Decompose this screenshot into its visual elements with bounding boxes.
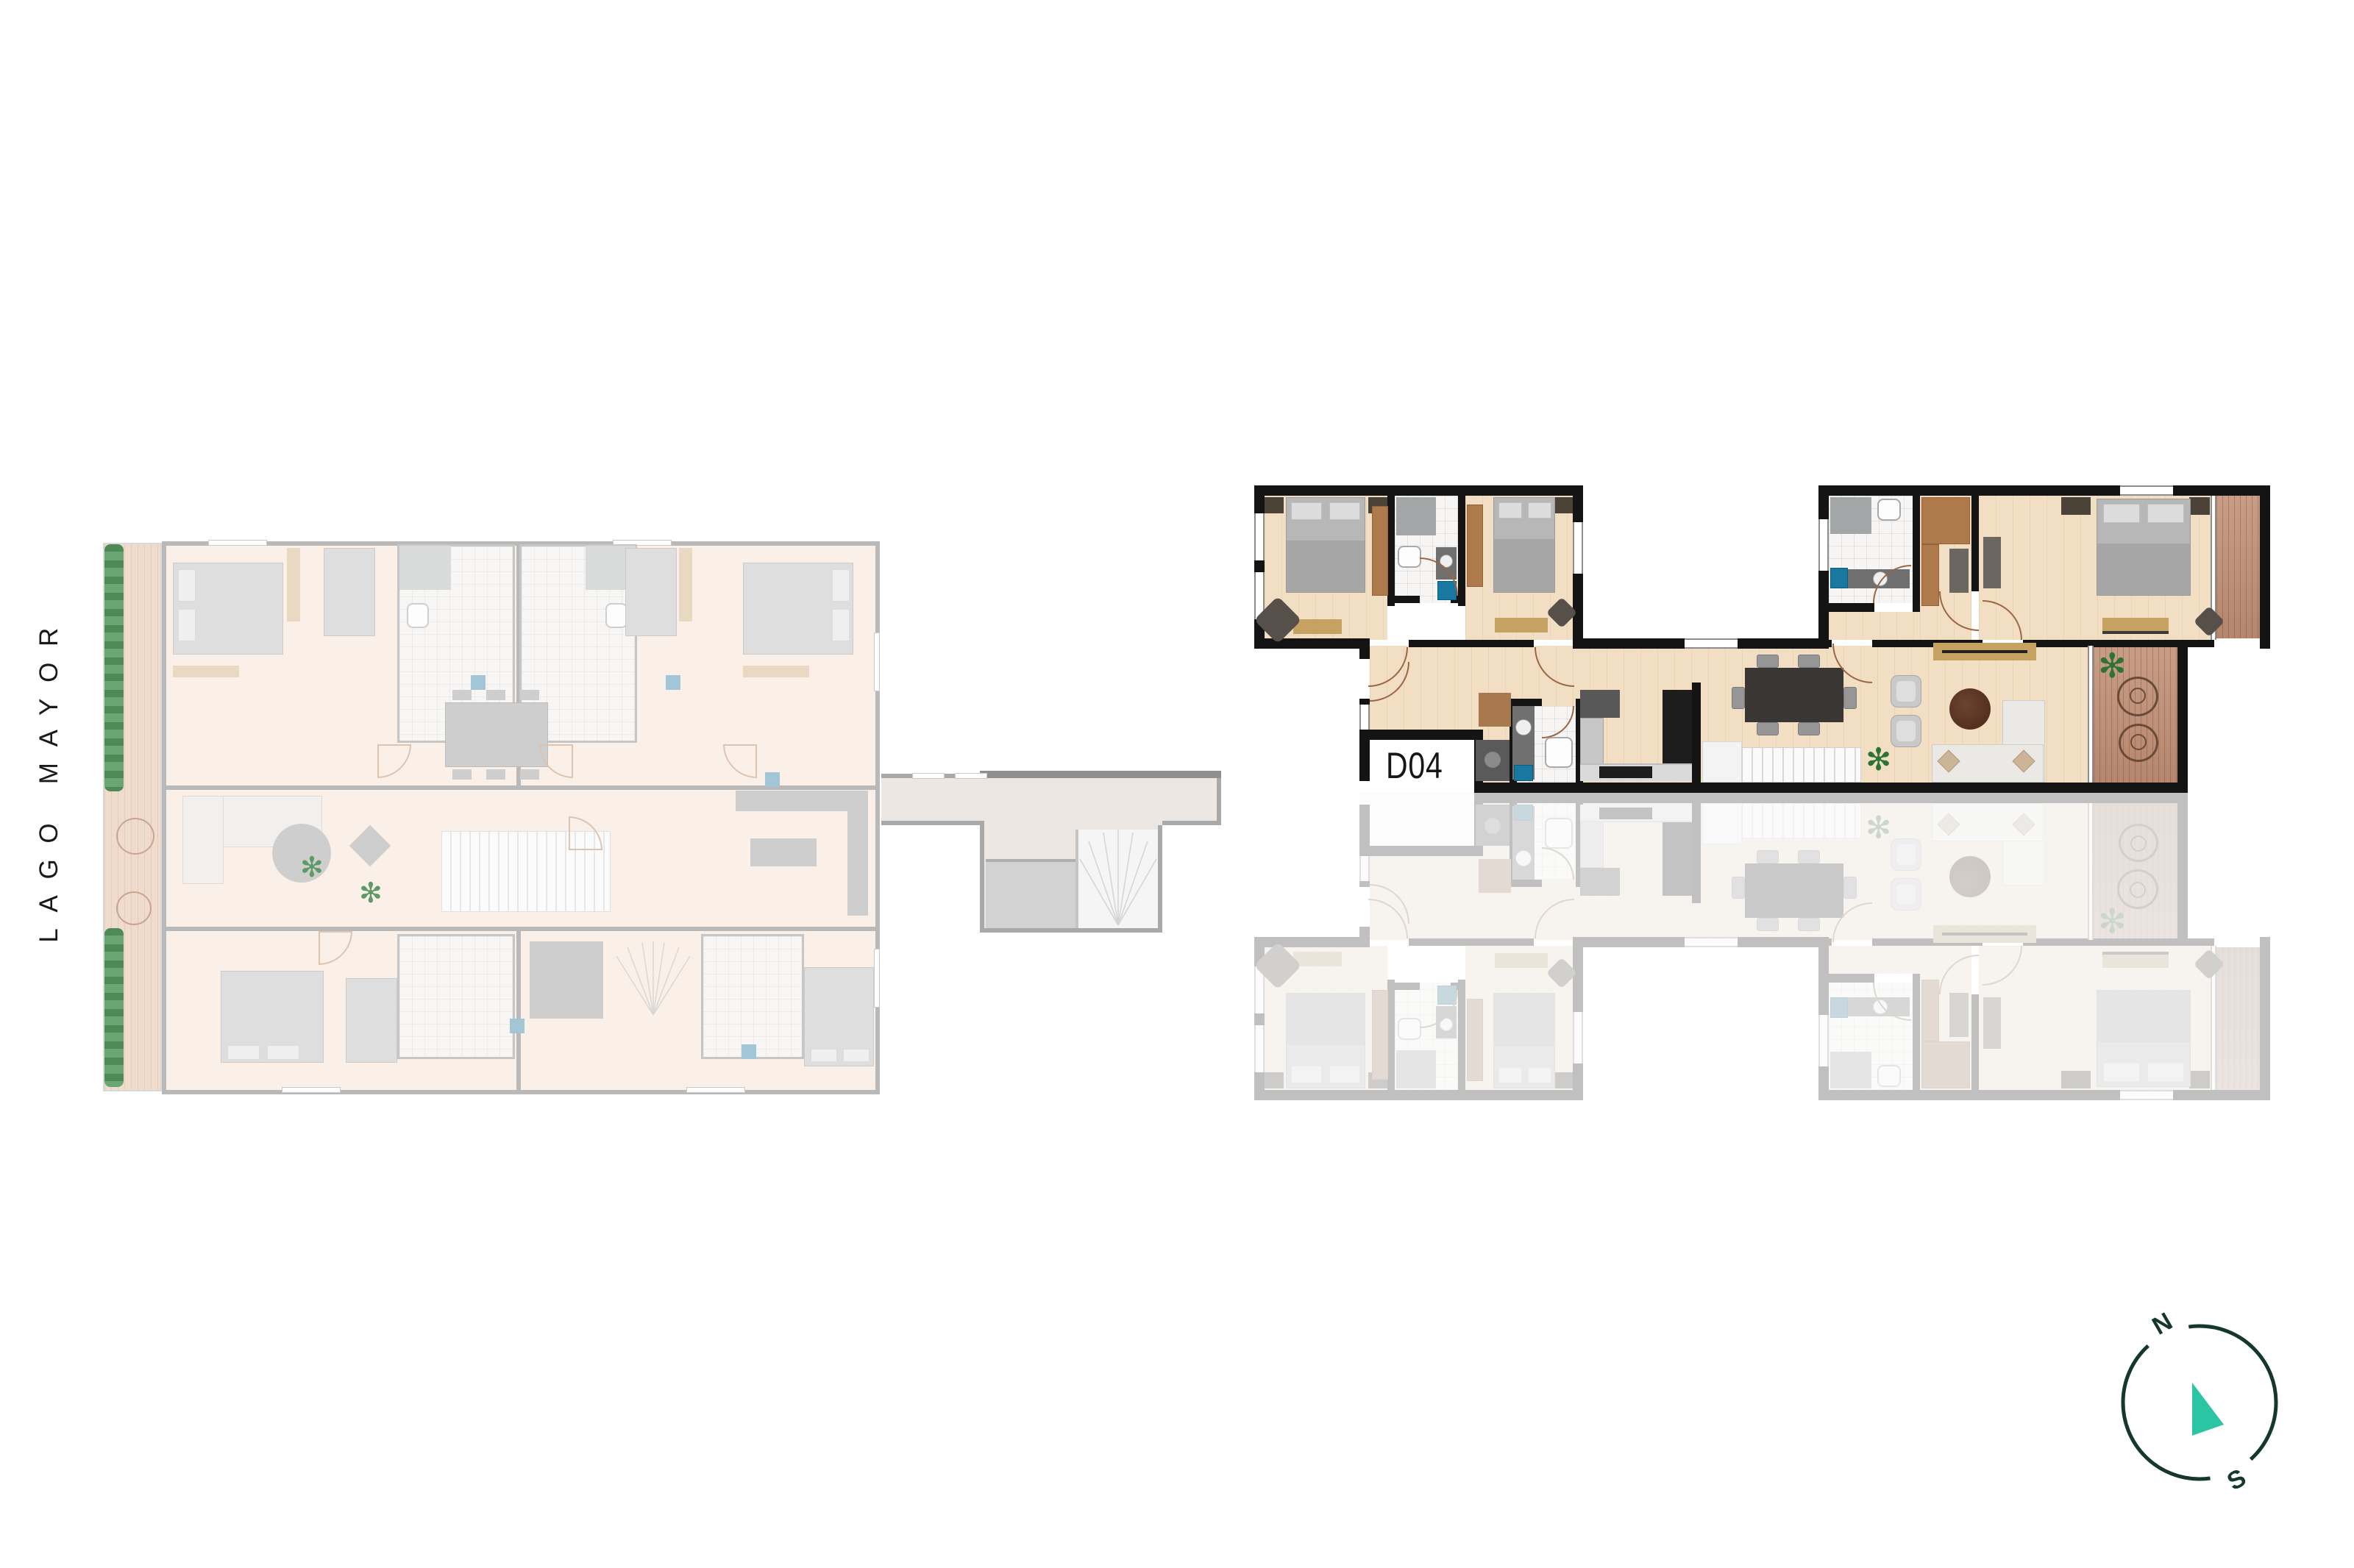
window (1685, 937, 1738, 947)
washer-door (1484, 818, 1501, 834)
wall (1829, 974, 1874, 983)
bed (743, 563, 853, 655)
wall (1409, 640, 1534, 647)
chair (520, 769, 539, 780)
cabinet (1702, 741, 1742, 783)
kitchen-tall-unit (1663, 690, 1692, 763)
pillow (1528, 502, 1551, 518)
chair (1798, 722, 1820, 735)
wall (1387, 596, 1420, 603)
wall (1971, 496, 1979, 591)
bed (1493, 497, 1555, 593)
wall (1254, 1090, 1583, 1100)
bed (1286, 497, 1365, 593)
bath-accent (510, 1019, 525, 1033)
hedge (104, 544, 124, 791)
bench (173, 666, 239, 677)
wall (1387, 496, 1395, 606)
blanket (2097, 991, 2190, 1042)
pillow (2147, 504, 2184, 523)
deck-strip (2216, 496, 2260, 638)
wall (1359, 846, 1483, 856)
bench (1293, 952, 1342, 966)
bench (1293, 619, 1342, 634)
dresser (1983, 537, 2001, 588)
bed (1286, 993, 1365, 1088)
pillow (843, 1049, 870, 1062)
closet-shelf (1921, 497, 1970, 544)
blanket (1494, 994, 1554, 1047)
pillow (227, 1045, 260, 1060)
shower (1830, 1052, 1871, 1088)
nightstand (1265, 497, 1284, 513)
console-detail (1942, 650, 2027, 653)
bath-accent (1514, 805, 1533, 821)
kitchen-tall-unit (1663, 822, 1692, 896)
wall (1913, 974, 1920, 1090)
window (2120, 1090, 2173, 1100)
wall (1387, 980, 1395, 1090)
compass-north-label: N (2147, 1308, 2177, 1341)
plant-icon: ✻ (1866, 744, 1891, 775)
glass-wall (2088, 646, 2094, 783)
pillow (1291, 1066, 1322, 1083)
bed (2097, 990, 2191, 1087)
window (955, 773, 987, 779)
bench (2102, 618, 2169, 634)
armchair (1891, 675, 1921, 708)
wall (162, 927, 880, 931)
terrace-chair (2119, 724, 2158, 762)
wall (1458, 980, 1465, 1090)
pillow (2103, 504, 2140, 523)
pillow (811, 1049, 837, 1062)
plant-icon: ✻ (300, 853, 324, 881)
nightstand (1265, 1072, 1284, 1088)
pillow (832, 569, 850, 602)
bench (743, 666, 809, 677)
kitchen-counter (847, 791, 868, 916)
pillow (267, 1045, 299, 1060)
wall (1409, 938, 1534, 946)
chair (1757, 655, 1779, 668)
pillow (1498, 502, 1522, 518)
toilet (407, 603, 429, 628)
sofa-chaise (182, 796, 224, 884)
hedge (104, 928, 124, 1087)
closet-shelf (1921, 1041, 1970, 1088)
armchair (1891, 878, 1921, 910)
wall (1821, 938, 1832, 946)
wall (881, 821, 984, 825)
sink (1515, 850, 1532, 866)
window (1573, 522, 1583, 574)
wall (1254, 485, 1583, 496)
wall (1818, 1090, 2270, 1100)
nightstand (1555, 497, 1573, 513)
shower (399, 546, 451, 590)
window (208, 540, 267, 546)
wall (1387, 983, 1420, 990)
blanket (1287, 994, 1365, 1045)
wall (1254, 638, 1365, 649)
compass: N S (2102, 1305, 2297, 1500)
terrace-chair-inner (2130, 688, 2146, 704)
wall (1829, 603, 1874, 612)
chair (486, 769, 505, 780)
unit-d04-label[interactable]: D04 (1386, 744, 1443, 787)
terrace-chair-inner (2130, 882, 2146, 898)
nightstand (2061, 497, 2091, 515)
toilet (1398, 1018, 1421, 1040)
chair (1732, 687, 1745, 709)
pillow (2103, 1063, 2140, 1082)
floorplan-canvas: LAGO MAYOR (0, 0, 2354, 1568)
single-bed (625, 548, 677, 636)
hall-floor (1829, 946, 1920, 974)
exterior-notch (1359, 793, 1474, 846)
kitchen-corner-unit (1580, 690, 1620, 718)
armchair-cushion (1896, 721, 1916, 741)
bathroom (701, 934, 804, 1059)
chair (1843, 687, 1857, 709)
nightstand (2189, 1071, 2210, 1088)
wall (1913, 496, 1920, 612)
blanket (2097, 544, 2190, 595)
plant-icon: ✻ (1866, 810, 1891, 841)
stair-fan (613, 941, 694, 1019)
wall (1158, 825, 1162, 933)
terrace-chair (116, 891, 152, 925)
blanket (1494, 539, 1554, 592)
bath-accent (1514, 765, 1533, 781)
dining-table (445, 702, 548, 767)
unit-below-faded: ✻ ✻ (1251, 793, 2273, 1100)
wall (1692, 683, 1701, 790)
kitchen-island (750, 838, 817, 866)
cabinet (1702, 803, 1742, 844)
bed (1493, 993, 1555, 1088)
washer-door (1484, 752, 1501, 768)
chair (1757, 722, 1779, 735)
wardrobe (1467, 505, 1483, 587)
plant-icon: ✻ (359, 879, 383, 907)
window (1573, 1012, 1583, 1063)
project-name-label: LAGO MAYOR (22, 596, 77, 959)
bathroom (397, 934, 515, 1059)
stairs (1742, 803, 1861, 838)
terrace-chair (116, 818, 154, 855)
pillow (178, 569, 196, 602)
chair (520, 690, 539, 700)
window (1685, 638, 1738, 649)
toilet (605, 603, 627, 628)
single-bed (346, 978, 397, 1063)
fridge (1580, 819, 1604, 868)
wall (1971, 994, 1979, 1090)
terrace-chair (2119, 824, 2158, 862)
wall (2177, 646, 2188, 790)
bench (2102, 952, 2169, 968)
wardrobe (1372, 506, 1388, 596)
wall (1458, 496, 1465, 606)
wall (1254, 937, 1365, 947)
window (1254, 513, 1265, 560)
wall (1692, 796, 1701, 903)
pillow (1329, 502, 1360, 520)
elevator (530, 941, 603, 1019)
laundry-mat (1479, 859, 1511, 893)
pillow (1329, 1066, 1360, 1083)
chair (1732, 877, 1745, 899)
bath-accent (1830, 568, 1848, 588)
wall (516, 927, 521, 1094)
blanket (1287, 541, 1365, 592)
closet-shelf (1921, 544, 1939, 606)
bed (804, 967, 874, 1066)
shower (1396, 1050, 1436, 1088)
plant-icon: ✻ (2098, 903, 2127, 937)
dresser (1983, 997, 2001, 1049)
bench (1495, 618, 1548, 632)
bench (1495, 953, 1548, 968)
chair (1798, 850, 1820, 863)
compass-needle-icon (2192, 1383, 2224, 1436)
pillow (178, 609, 196, 641)
chair (1757, 918, 1779, 931)
plant-icon: ✻ (2098, 649, 2127, 683)
console-table (1933, 925, 2036, 943)
window (1818, 519, 1829, 571)
sink (1515, 719, 1532, 735)
corridor-floor (881, 778, 1221, 825)
bath-accent (765, 772, 780, 787)
glass-wall (2088, 803, 2094, 940)
wall (2177, 796, 2188, 940)
armchair-cushion (1896, 681, 1916, 702)
armchair (1891, 838, 1921, 871)
deck-strip (2216, 947, 2260, 1090)
nightstand (2061, 1071, 2091, 1088)
shower (1830, 497, 1871, 534)
pillow (1291, 502, 1322, 520)
console-detail (1942, 933, 2027, 936)
compass-south-label: S (2222, 1464, 2251, 1496)
console-table (1933, 643, 2036, 660)
window (912, 773, 945, 779)
chair (452, 690, 472, 700)
bed (221, 971, 324, 1063)
toilet (1398, 546, 1421, 568)
toilet (1545, 737, 1573, 768)
wardrobe (679, 548, 692, 621)
terrace-chair-inner (2130, 835, 2147, 852)
chair (1798, 655, 1820, 668)
wall (2260, 937, 2270, 1100)
project-name-text: LAGO MAYOR (35, 612, 64, 943)
chair (1798, 918, 1820, 931)
stairs (1742, 747, 1861, 783)
wall (1359, 730, 1483, 740)
wall (1162, 821, 1221, 825)
dresser (1949, 993, 1969, 1037)
hall-floor (1829, 612, 1920, 640)
cooktop (1599, 808, 1652, 819)
wall (980, 928, 1162, 933)
fridge (1580, 718, 1604, 766)
terrace-chair (2117, 677, 2158, 716)
bath-accent (742, 1044, 756, 1059)
wall (1821, 640, 1832, 647)
chair (1843, 877, 1857, 899)
pillow (2147, 1063, 2184, 1082)
window (874, 949, 880, 1008)
dresser (1949, 549, 1969, 593)
window (874, 632, 880, 691)
armchair-cushion (1896, 884, 1916, 905)
window (2120, 485, 2173, 496)
pillow (1528, 1067, 1551, 1083)
wall (1818, 485, 2270, 496)
window (1818, 1015, 1829, 1066)
dining-table (1745, 668, 1843, 722)
pillow (832, 609, 850, 641)
toilet (1877, 499, 1901, 521)
wall (980, 771, 1221, 778)
kitchen-corner-unit (1580, 868, 1620, 896)
pillow (1498, 1067, 1522, 1083)
nightstand (1555, 1072, 1573, 1088)
nightstand (2189, 497, 2210, 515)
armchair-cushion (1896, 844, 1916, 865)
bath-accent (1830, 997, 1848, 1018)
bed (2097, 499, 2191, 596)
bath-accent (666, 675, 680, 690)
toilet (1877, 1065, 1901, 1087)
terrace-chair-inner (2130, 734, 2147, 750)
building-left-faded: ✻ ✻ (98, 537, 881, 1097)
coffee-table (1949, 688, 1991, 730)
wardrobe (1467, 999, 1483, 1081)
terrace-chair (2117, 869, 2158, 909)
coffee-table (1949, 856, 1991, 897)
toilet (1545, 818, 1573, 849)
window (282, 1087, 341, 1093)
single-bed (324, 548, 375, 636)
wall (980, 825, 984, 933)
armchair (1891, 715, 1921, 747)
bed (173, 563, 283, 655)
wardrobe (1372, 990, 1388, 1080)
window (686, 1087, 745, 1093)
chair (1757, 850, 1779, 863)
stair-fan (1078, 830, 1158, 928)
wall (1217, 778, 1221, 825)
laundry-mat (1479, 693, 1511, 727)
wardrobe (287, 548, 300, 621)
bath-accent (471, 675, 486, 690)
chair (452, 769, 472, 780)
shower (1396, 497, 1436, 535)
wall (2260, 485, 2270, 649)
elevator (986, 859, 1075, 928)
dining-table (1745, 863, 1843, 918)
cooktop (1599, 766, 1652, 778)
chair (486, 690, 505, 700)
window (1254, 1025, 1265, 1072)
closet-shelf (1921, 980, 1939, 1041)
